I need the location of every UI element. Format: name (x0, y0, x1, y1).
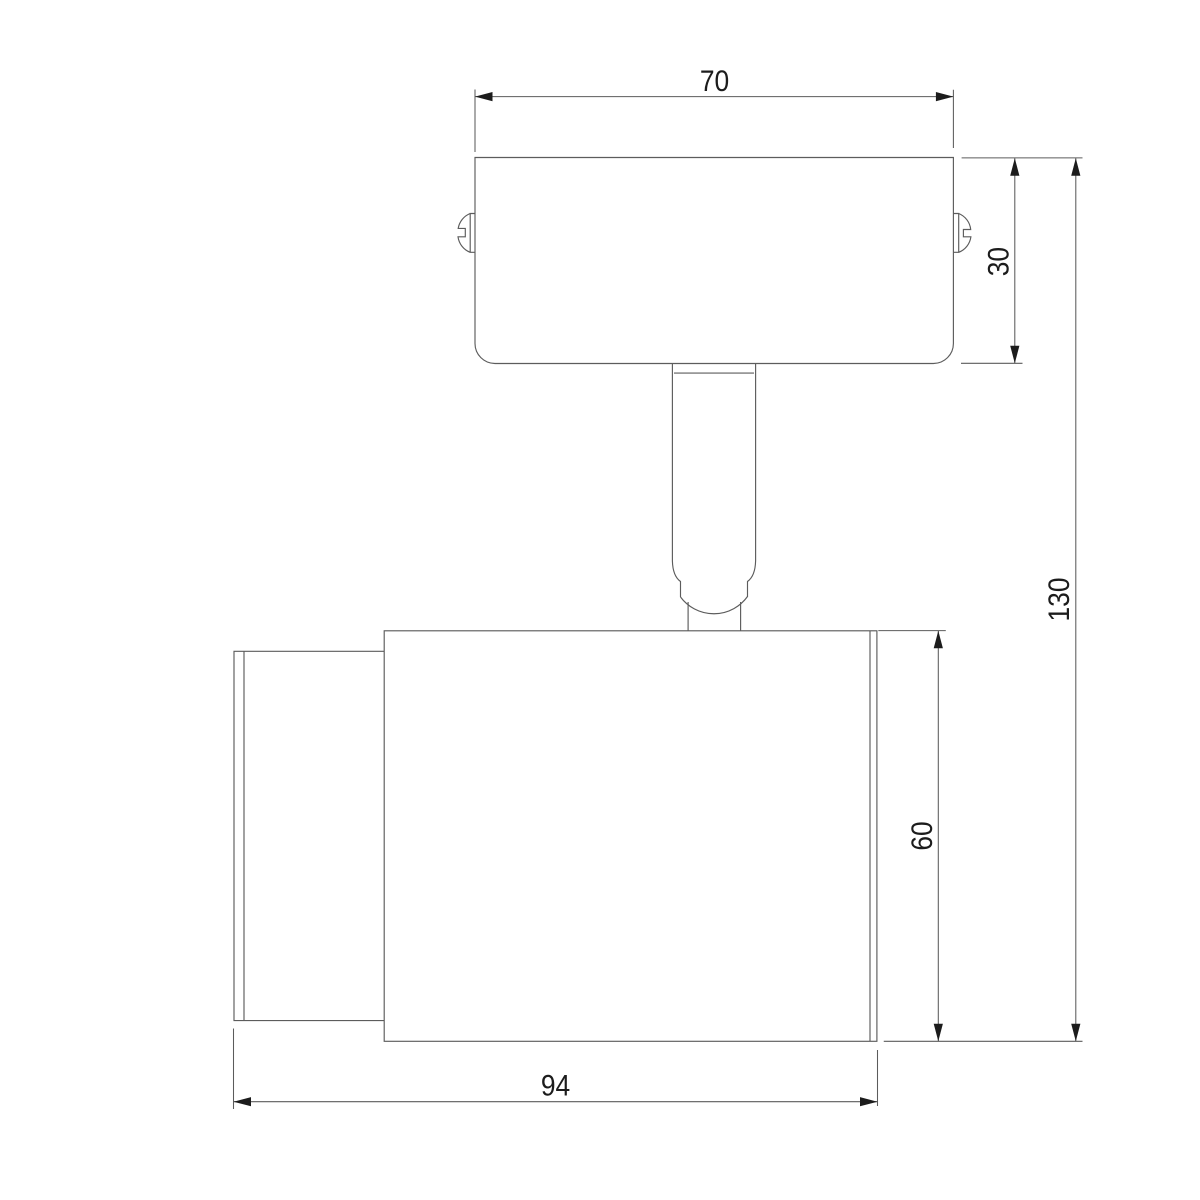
svg-text:60: 60 (904, 821, 938, 850)
svg-text:94: 94 (541, 1068, 570, 1102)
svg-text:130: 130 (1041, 577, 1075, 621)
svg-text:70: 70 (700, 63, 729, 97)
svg-text:30: 30 (981, 247, 1015, 276)
